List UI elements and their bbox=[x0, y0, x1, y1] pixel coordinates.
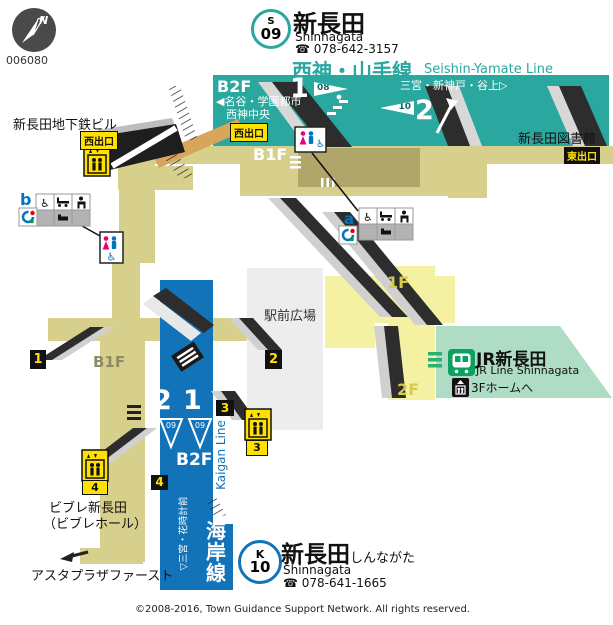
exit-1-badge: 1 bbox=[30, 350, 46, 369]
compass-north-label: N bbox=[39, 14, 48, 27]
jr-station-label-en: JR Line Shinnagata bbox=[476, 364, 579, 377]
paid-area-block bbox=[298, 148, 420, 187]
direction-right: 三宮・新神戸・谷上▷ bbox=[400, 77, 507, 93]
east-exit-badge: 東出口 bbox=[564, 147, 600, 164]
jr-elevator-icon bbox=[452, 378, 469, 397]
exit-2-badge: 2 bbox=[265, 350, 282, 369]
west-exit-badge-building: 西出口 bbox=[80, 131, 118, 150]
station-number: 10 bbox=[250, 560, 271, 575]
exit-4-badge: 4 bbox=[151, 475, 168, 490]
fare-gates-jr bbox=[428, 352, 442, 368]
man-icon bbox=[309, 131, 314, 144]
wheelchair-icon: ♿ bbox=[316, 139, 325, 150]
station-number: 09 bbox=[261, 27, 282, 41]
kaigan-platform-2-number: 2 bbox=[153, 385, 172, 416]
exit-3-badge: 3 bbox=[216, 400, 234, 416]
asta-plaza-label: アスタプラザファースト bbox=[31, 565, 173, 584]
wheelchair-icon: ♿ bbox=[40, 197, 50, 210]
vivre-label-line2: （ビブレホール） bbox=[43, 513, 147, 532]
multipurpose-toilet-a-icon bbox=[339, 226, 357, 244]
elevator-4-tag: 4 bbox=[82, 480, 108, 495]
station-guide-map: ♿ ♿ ♿ bbox=[0, 0, 613, 625]
station-phone: ☎ 078-642-3157 bbox=[295, 42, 399, 56]
multipurpose-toilet-b-icon bbox=[19, 208, 37, 226]
seishin-line-badge: S 09 bbox=[251, 9, 291, 49]
station-name-romaji: Shinnagata bbox=[283, 563, 351, 577]
direction-left-line2: 西神中央 bbox=[226, 106, 270, 122]
b1f-label-right: B1F bbox=[253, 145, 287, 164]
kaigan-line-name-jp: 海岸線 bbox=[203, 521, 229, 584]
b1f-label-left: B1F bbox=[93, 353, 125, 371]
platform-1-number: 1 bbox=[290, 73, 309, 104]
man-icon bbox=[112, 236, 117, 249]
station-phone: ☎ 078-641-1665 bbox=[283, 576, 387, 590]
kaigan-platform-1-number: 1 bbox=[183, 385, 202, 416]
copyright-notice: ©2008-2016, Town Guidance Support Networ… bbox=[135, 604, 435, 615]
floor-1f-label: 1F bbox=[387, 273, 409, 292]
west-exit-badge-platform: 西出口 bbox=[230, 123, 268, 142]
legend-marker-a: a bbox=[344, 210, 354, 228]
compass: N bbox=[11, 7, 57, 53]
restroom-b: ♿ bbox=[100, 232, 123, 264]
jr-train-icon bbox=[448, 349, 475, 376]
elevator-exit3-icon bbox=[245, 409, 271, 440]
elevator-3-tag: 3 bbox=[246, 440, 268, 456]
wheelchair-icon: ♿ bbox=[107, 251, 117, 264]
fare-gates-b1f-left bbox=[127, 405, 141, 420]
legend-marker-b: b bbox=[20, 190, 31, 209]
jr-to-platform-label: 3Fホームへ bbox=[471, 379, 533, 396]
library-label: 新長田図書館 bbox=[518, 128, 596, 147]
seishin-line-name-jp: 西神・山手線 bbox=[292, 55, 412, 84]
platform-2-number: 2 bbox=[415, 95, 434, 126]
map-id: 006080 bbox=[6, 54, 48, 67]
station-name-hiragana: しんながた bbox=[350, 551, 415, 566]
kaigan-line-badge: K 10 bbox=[238, 540, 282, 584]
restroom-a: ♿ bbox=[295, 127, 326, 152]
plaza-label: 駅前広場 bbox=[264, 305, 316, 324]
subway-building-label: 新長田地下鉄ビル bbox=[13, 114, 117, 133]
wheelchair-icon: ♿ bbox=[363, 211, 373, 224]
car-number-wedge: 09 bbox=[166, 421, 176, 430]
kaigan-floor-label: B2F bbox=[176, 450, 212, 470]
floor-2f-label: 2F bbox=[397, 380, 419, 399]
seishin-line-name-en: Seishin-Yamate Line bbox=[424, 62, 553, 77]
elevator-exit4-icon bbox=[82, 450, 108, 481]
legend-a-facilities: ♿ bbox=[359, 208, 413, 240]
kaigan-direction-label: ▽三宮・花時計前 bbox=[176, 486, 189, 582]
car-number-wedge: 09 bbox=[195, 421, 205, 430]
legend-b-facilities: ♿ bbox=[36, 194, 90, 226]
